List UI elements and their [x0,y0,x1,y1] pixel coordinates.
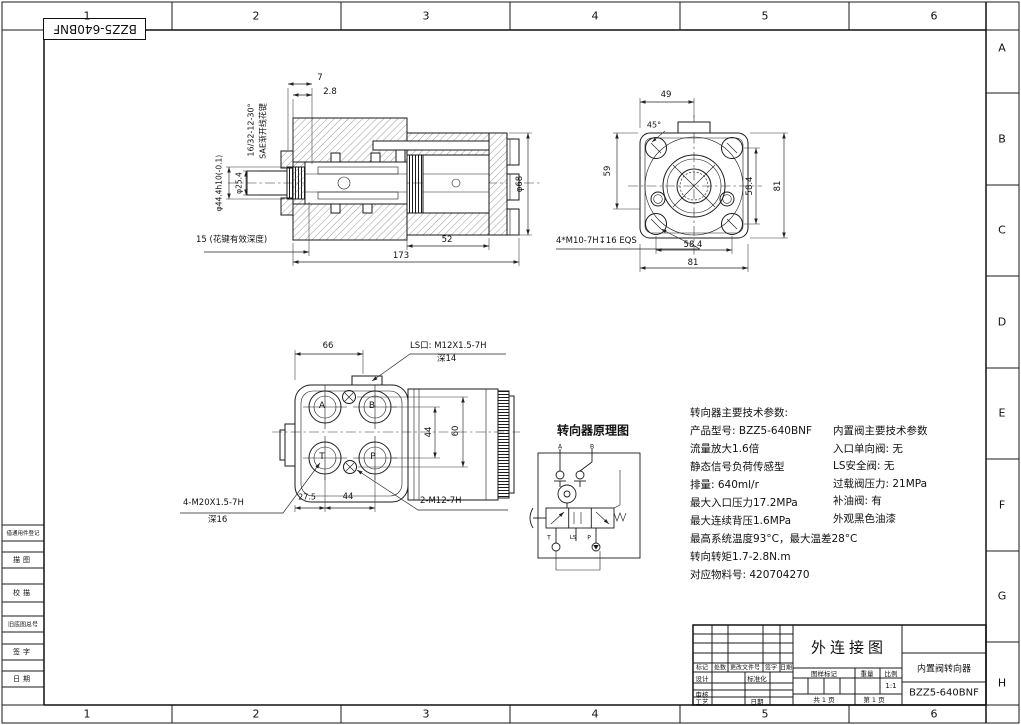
margin-label: 借通用件登记 [6,529,39,537]
weight-label: 重量 [861,668,874,678]
param-line: 最高系统温度93°C，最大温差28°C [690,531,890,549]
param-line: 转向转矩1.7-2.8N.m [690,549,890,567]
dim-label: 52 [442,235,453,245]
spline-note: 16/32-12-30° [247,103,256,156]
ls-port-note: LS口: M12X1.5-7H [410,339,487,351]
dim-label: 44 [424,427,434,438]
schematic-port-label: B [590,444,594,451]
dim-label: 173 [393,251,409,261]
schematic-port-label: P [587,535,591,542]
grid-row-label: H [998,677,1006,690]
main-port-note: 深16 [208,513,227,525]
dim-label: 45° [647,121,661,130]
param-line: 对应物料号: 420704270 [690,567,890,585]
param-line: 入口单向阀: 无 [833,441,983,459]
grid-row-label: A [998,42,1006,55]
param-line: LS安全阀: 无 [833,458,983,476]
dim-label: 49 [661,90,672,100]
engineering-drawing-sheet: { "page": {"paper_color": "#ffffff", "in… [0,0,1021,725]
dim-label: φ44.4h10(-0.1) [215,155,224,211]
valve-parameters-block: 内置阀主要技术参数 入口单向阀: 无 LS安全阀: 无 过载阀压力: 21MPa… [833,423,983,529]
schematic-title: 转向器原理图 [557,422,629,439]
param-line: 内置阀主要技术参数 [833,423,983,441]
dim-label: 60 [451,426,461,437]
corner-part-number-tag: BZZ5-640BNF [43,18,146,40]
grid-column-label: 6 [931,10,938,23]
margin-label: 签字 [13,647,33,657]
sheet-frame [2,2,1019,723]
param-line: 外观黑色油漆 [833,511,983,529]
grid-row-label: E [999,407,1006,420]
rev-header: 标记 [696,663,708,672]
small-port-note: 2-M12-7H [420,496,462,506]
ls-port-note: 深14 [437,352,456,364]
date-label: 日期 [751,696,764,706]
grid-column-label: 2 [253,708,260,721]
grid-row-label: C [998,224,1006,237]
grid-column-label: 3 [423,10,430,23]
design-label: 设计 [696,673,709,683]
rev-header: 处数 [714,663,726,672]
dim-label: 2.8 [323,87,337,97]
schematic-port-label: T [547,535,551,542]
dim-label: 7 [317,73,322,83]
rev-header: 签字 [765,663,777,672]
process-label: 工艺 [696,696,709,706]
grid-column-label: 4 [592,10,599,23]
dim-label: 58.4 [745,177,755,196]
grid-column-label: 1 [84,10,91,23]
rev-header: 日期 [780,663,792,672]
grid-column-label: 5 [762,708,769,721]
grid-column-label: 4 [592,708,599,721]
grid-row-label: B [998,133,1006,146]
port-letter-b: B [369,401,375,411]
dim-label: φ25.4 [235,172,244,194]
part-number: BZZ5-640BNF [909,688,979,699]
grid-column-label: 1 [84,708,91,721]
bolt-hole-note: 4*M10-7H↧16 EQS [556,236,637,246]
grid-column-label: 6 [931,708,938,721]
margin-label: 旧底图总号 [8,620,38,629]
schematic-port-label: LS [570,535,577,541]
schematic-art [530,449,640,570]
rev-header: 更改文件号 [730,663,760,672]
grid-column-label: 3 [423,708,430,721]
param-line: 转向器主要技术参数: [690,405,890,423]
spline-depth-note: 15 (花键有效深度) [196,233,267,245]
port-view-art [180,350,520,513]
port-letter-a: A [319,401,325,411]
margin-block-grid [2,525,44,687]
grid-row-label: G [998,590,1007,603]
dim-label: 44 [343,492,354,502]
drawing-title: 外连接图 [811,637,887,658]
port-letter-p: P [370,452,375,462]
sheet-total: 共 1 页 [813,694,834,704]
dim-label: φ68 [515,176,525,192]
grid-row-label: F [999,499,1005,512]
corner-part-number: BZZ5-640BNF [53,22,137,36]
margin-label: 校描 [13,588,33,598]
port-letter-t: T [319,452,325,462]
spline-note: SAE渐开线花键 [258,103,269,159]
grid-column-label: 5 [762,10,769,23]
dim-label: 81 [773,181,783,192]
grid-row-label: D [998,316,1006,329]
grid-column-label: 2 [253,10,260,23]
schematic-port-label: A [558,444,562,451]
standard-label: 标准化 [747,673,767,683]
sheet-number: 第 1 页 [863,694,884,704]
dim-label: 58.4 [684,240,703,250]
dim-label: 81 [688,258,699,268]
param-line: 过载阀压力: 21MPa [833,476,983,494]
dim-label: 27.5 [298,493,316,502]
scale-value: 1:1 [885,682,896,690]
margin-label: 日期 [13,674,33,684]
main-port-note: 4-M20X1.5-7H [183,498,244,508]
param-line: 补油阀: 有 [833,493,983,511]
margin-label: 描图 [13,555,33,565]
dim-label: 66 [323,341,334,351]
drawing-linework: .g{stroke:#1a1a1a;fill:none;stroke-width… [0,0,1021,725]
dim-label: 59 [603,166,613,177]
mark-label: 图样标记 [811,668,837,678]
product-name: 内置阀转向器 [917,662,971,675]
scale-label: 比例 [885,668,898,678]
